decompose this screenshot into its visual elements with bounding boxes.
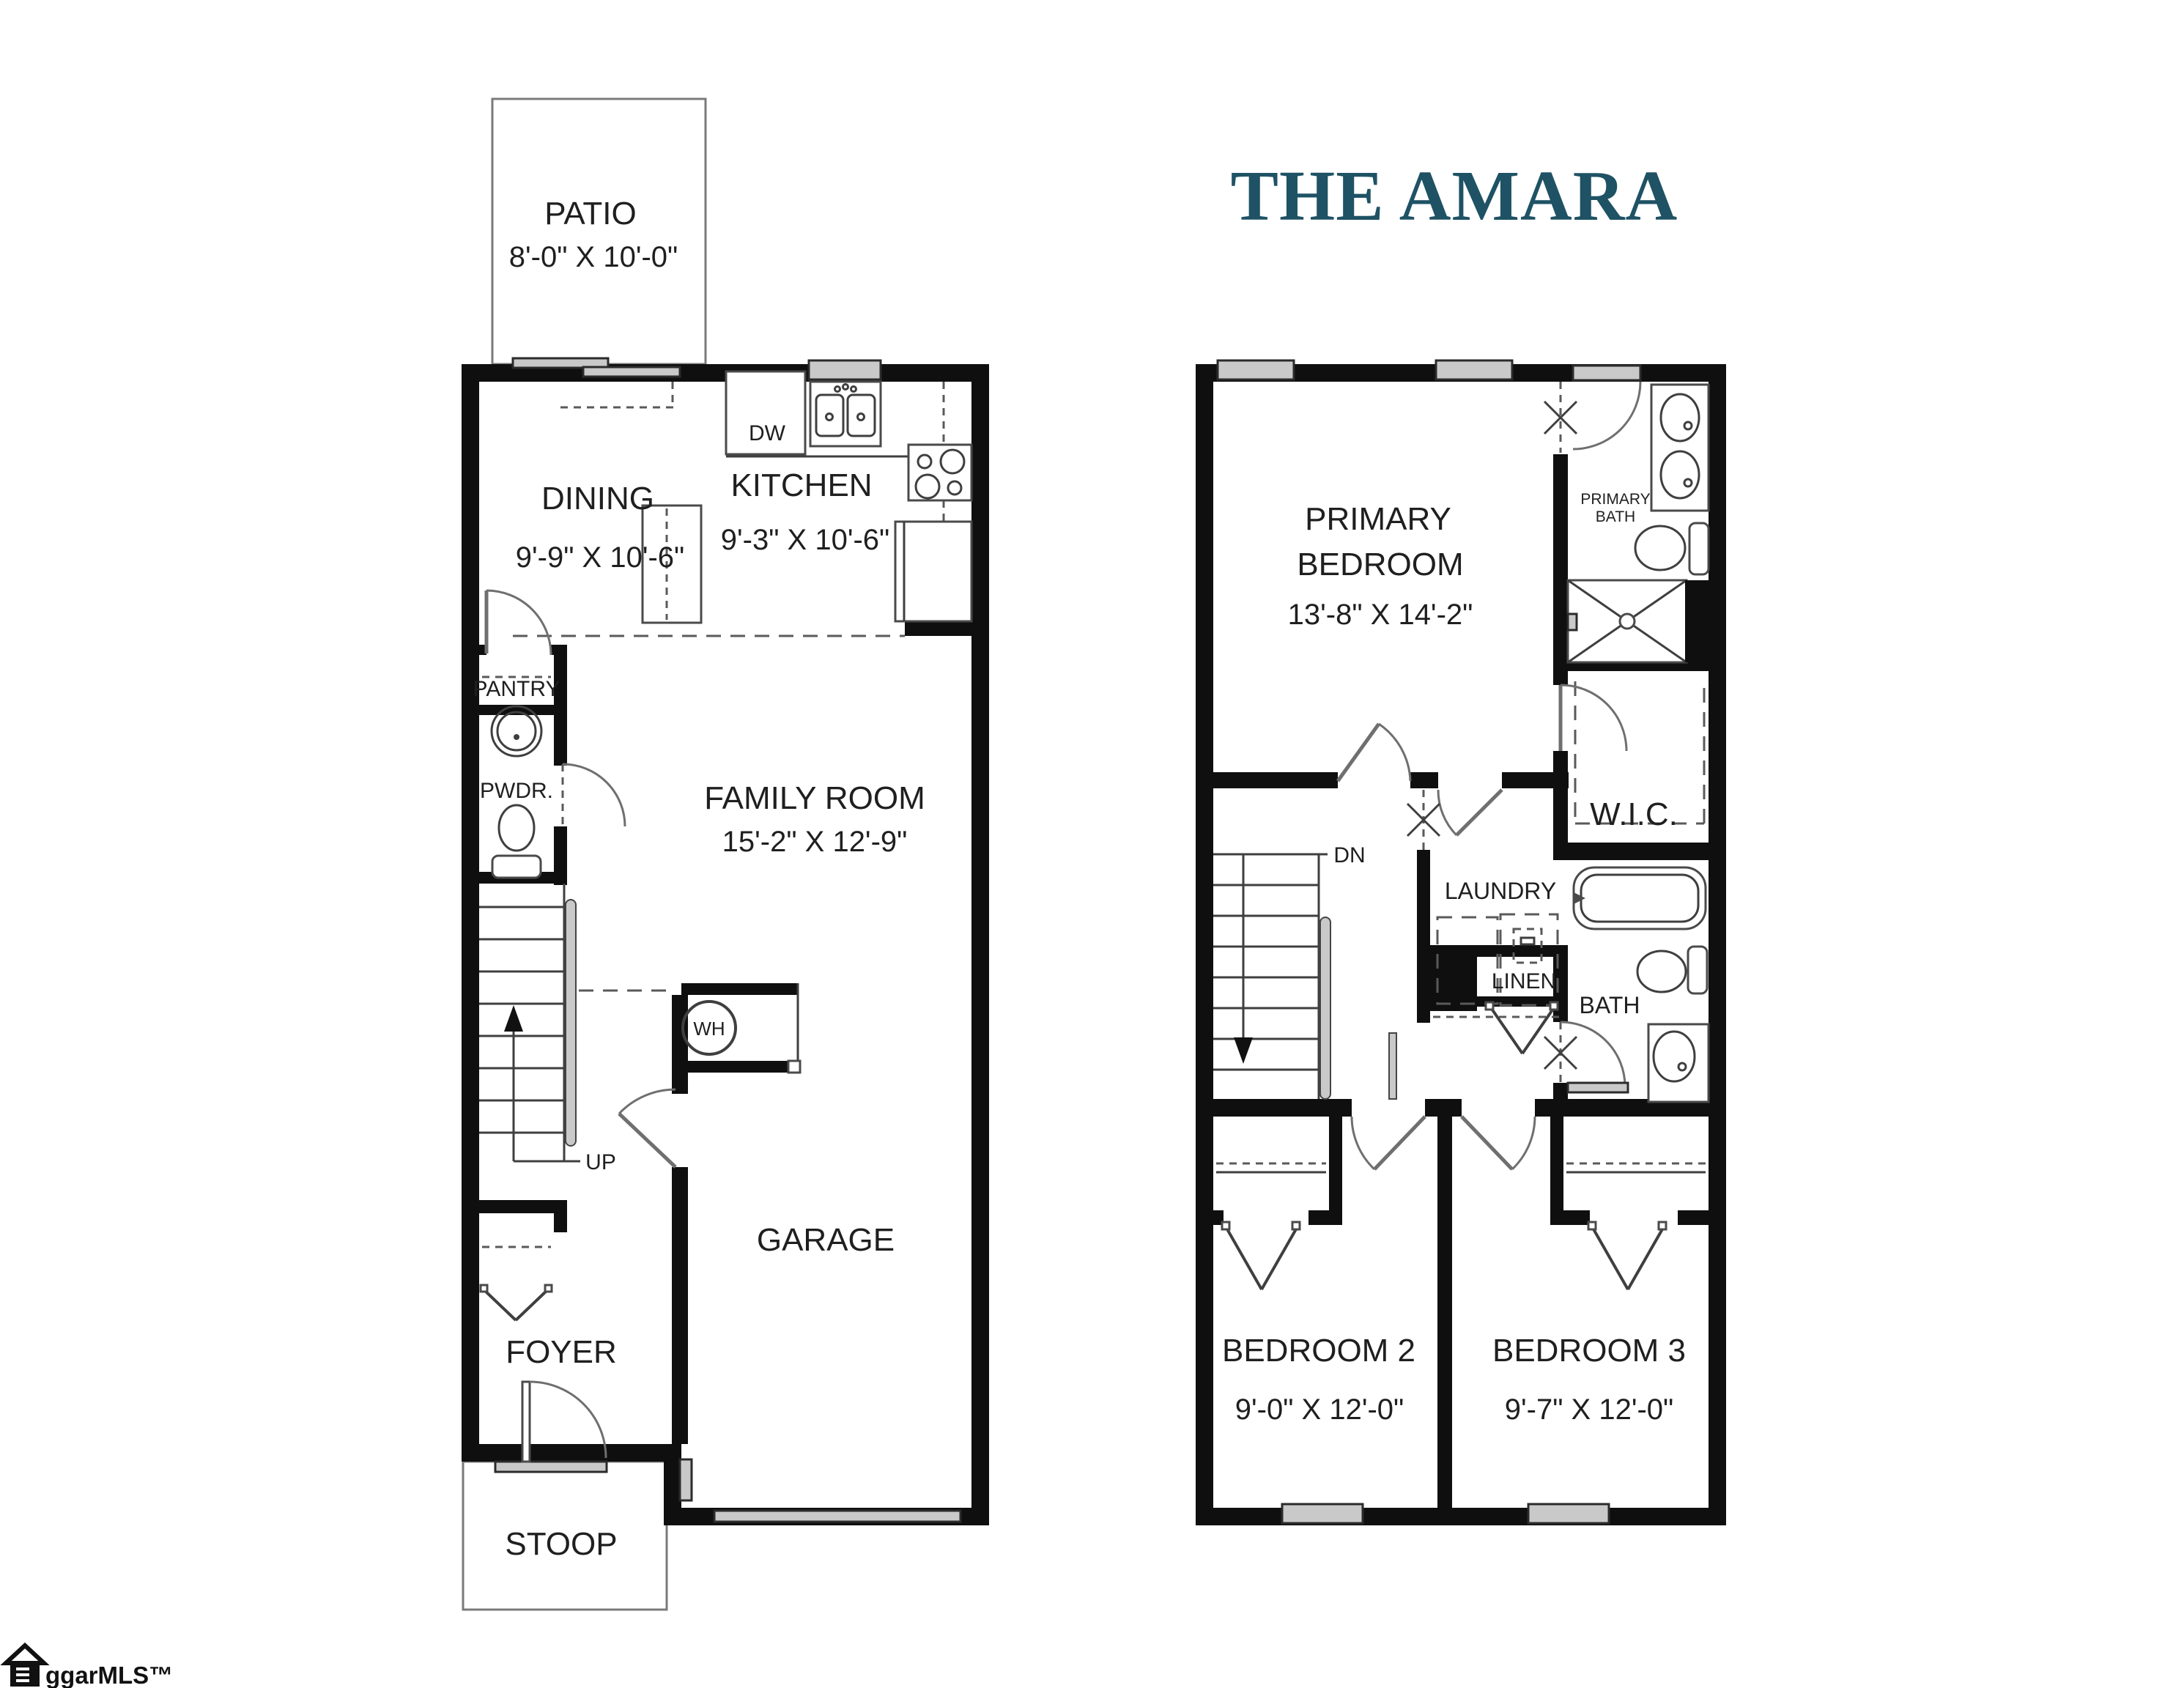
primary-bedroom-dims: 13'-8" X 14'-2" bbox=[1288, 599, 1473, 631]
dn-label: DN bbox=[1333, 843, 1365, 867]
primary-bath-label-line2: BATH bbox=[1596, 508, 1635, 525]
wall-segment bbox=[1417, 945, 1568, 957]
bedroom3-door-leaf bbox=[1462, 1117, 1512, 1169]
bifold-end bbox=[1659, 1222, 1666, 1229]
wall-segment bbox=[462, 1444, 681, 1462]
dining-dims: 9'-9" X 10'-6" bbox=[516, 541, 684, 574]
garage-entry-door-arc bbox=[619, 1089, 675, 1114]
water-heater: WH bbox=[683, 983, 800, 1073]
second-floor-plan: PRIMARY BATH W.I.C. LAUNDRY bbox=[1196, 360, 1726, 1525]
wall-segment bbox=[554, 1200, 567, 1232]
primary-bedroom-door-leaf bbox=[1338, 724, 1379, 781]
front-door-threshold bbox=[495, 1462, 607, 1472]
pantry-door-arc bbox=[486, 591, 551, 655]
first-floor-plan: PATIO 8'-0" X 10'-0" STOOP bbox=[462, 99, 989, 1610]
sink-drain bbox=[514, 734, 519, 740]
window bbox=[1218, 360, 1294, 380]
house-icon bbox=[6, 1646, 44, 1663]
bifold-end bbox=[545, 1285, 552, 1292]
bifold-end bbox=[1550, 1002, 1558, 1010]
linen-bifold bbox=[1490, 1007, 1555, 1054]
bath-door-threshold bbox=[1568, 1083, 1628, 1092]
house-icon-line bbox=[16, 1679, 29, 1682]
wic-label: W.I.C. bbox=[1590, 796, 1678, 832]
watermark-text: ggarMLS™ bbox=[45, 1662, 173, 1688]
toilet-tank bbox=[1688, 947, 1707, 993]
wic-door-arc bbox=[1561, 685, 1626, 751]
family-room-label: FAMILY ROOM bbox=[704, 780, 925, 816]
closet-bifold bbox=[1226, 1228, 1297, 1289]
nook-post bbox=[788, 1061, 800, 1073]
house-icon-line bbox=[16, 1667, 29, 1670]
bath-door-arc bbox=[1561, 1022, 1625, 1087]
wall-segment bbox=[1329, 1117, 1342, 1210]
toilet-tank bbox=[492, 856, 541, 878]
primary-bath-label-line1: PRIMARY bbox=[1580, 491, 1650, 508]
stair-railing bbox=[566, 900, 576, 1146]
wall-segment bbox=[971, 364, 989, 1525]
watermark: ggarMLS™ bbox=[6, 1646, 173, 1688]
linen-label: LINEN bbox=[1492, 969, 1556, 993]
window bbox=[1528, 1504, 1609, 1523]
wall-segment bbox=[1196, 364, 1213, 1525]
upper-cabinet-dashed bbox=[560, 382, 674, 407]
laundry-label: LAUNDRY bbox=[1445, 878, 1556, 904]
stair-treads bbox=[479, 907, 564, 1133]
wall-segment bbox=[681, 983, 799, 995]
linen-closet: LINEN bbox=[1486, 969, 1558, 1054]
wall-segment bbox=[1553, 663, 1568, 685]
toilet-bowl bbox=[499, 805, 534, 851]
wall-segment bbox=[672, 1167, 688, 1444]
primary-bath: PRIMARY BATH bbox=[1544, 366, 1709, 662]
laundry-door-arc bbox=[1438, 790, 1456, 835]
vanity-counter bbox=[1651, 385, 1709, 511]
stairs-first-floor: UP bbox=[479, 884, 616, 1174]
wall-segment bbox=[1410, 772, 1438, 788]
wall-segment bbox=[1196, 1508, 1726, 1525]
wall-segment bbox=[1308, 1210, 1342, 1225]
toilet-tank bbox=[1689, 523, 1709, 574]
window bbox=[1436, 360, 1512, 380]
wall-segment bbox=[462, 364, 479, 1462]
hall-bath: BATH bbox=[1544, 867, 1709, 1102]
stair-railing bbox=[1389, 1033, 1396, 1099]
garage-door bbox=[714, 1511, 960, 1522]
bathtub bbox=[1574, 867, 1706, 929]
bedroom2-door-arc bbox=[1352, 1117, 1374, 1169]
dishwasher-label: DW bbox=[749, 421, 786, 445]
patio-dims: 8'-0" X 10'-0" bbox=[509, 241, 678, 273]
wall-segment bbox=[1425, 1099, 1462, 1117]
front-door-leaf bbox=[522, 1382, 530, 1462]
bedroom2-dims: 9'-0" X 12'-0" bbox=[1235, 1393, 1404, 1426]
stair-treads bbox=[1213, 854, 1319, 1070]
floor-plan-canvas: THE AMARA PATIO 8'-0" X 10'-0" STOOP bbox=[0, 0, 2184, 1688]
wall-segment bbox=[1550, 1117, 1563, 1210]
bedroom2-label: BEDROOM 2 bbox=[1222, 1333, 1415, 1369]
garage-entry-door-leaf bbox=[619, 1114, 675, 1167]
wall-segment bbox=[1550, 1210, 1590, 1225]
dining-label: DINING bbox=[541, 481, 654, 517]
toilet-bowl bbox=[1635, 526, 1685, 570]
refrigerator bbox=[895, 522, 971, 621]
shower-head bbox=[1568, 614, 1577, 630]
dryer-control bbox=[1521, 938, 1534, 944]
bedroom3-label: BEDROOM 3 bbox=[1492, 1333, 1686, 1369]
water-heater-label: WH bbox=[693, 1018, 725, 1040]
stairs-second-floor: DN bbox=[1213, 843, 1396, 1099]
family-room-dims: 15'-2" X 12'-9" bbox=[722, 826, 908, 858]
dn-arrow-head bbox=[1234, 1037, 1253, 1064]
bifold-end bbox=[1222, 1222, 1229, 1229]
powder-door-arc bbox=[563, 764, 625, 826]
wall-segment bbox=[1709, 364, 1726, 1525]
pantry-label: PANTRY bbox=[473, 677, 560, 701]
vanity-counter bbox=[1648, 1024, 1709, 1102]
wall-segment bbox=[681, 1061, 799, 1073]
pedestal-sink-inner bbox=[497, 712, 536, 750]
bedroom3-dims: 9'-7" X 12'-0" bbox=[1505, 1393, 1673, 1426]
wall-segment bbox=[1678, 1210, 1709, 1225]
garage-step bbox=[680, 1459, 692, 1500]
toilet-bowl bbox=[1637, 951, 1686, 992]
x-marker bbox=[1544, 401, 1577, 434]
stair-railing bbox=[1320, 917, 1330, 1099]
kitchen-window bbox=[809, 360, 881, 380]
bifold-end bbox=[1588, 1222, 1596, 1229]
foyer-label: FOYER bbox=[506, 1334, 617, 1370]
stoop-label: STOOP bbox=[505, 1526, 617, 1562]
walk-in-closet: W.I.C. bbox=[1561, 681, 1704, 832]
wall-segment bbox=[1553, 843, 1726, 860]
wall-segment bbox=[1213, 772, 1338, 788]
page-title: THE AMARA bbox=[1231, 157, 1678, 236]
house-icon-line bbox=[16, 1673, 29, 1676]
wall-segment bbox=[1437, 1117, 1452, 1508]
closet-bifold bbox=[484, 1289, 548, 1320]
patio-outline bbox=[492, 99, 706, 364]
window bbox=[1282, 1504, 1363, 1523]
shower-wall-fill bbox=[1685, 580, 1709, 662]
shower-drain bbox=[1620, 614, 1635, 629]
wall-segment bbox=[1553, 751, 1568, 843]
bedroom3-door-arc bbox=[1512, 1117, 1535, 1169]
up-label: UP bbox=[585, 1150, 616, 1174]
garage-label: GARAGE bbox=[757, 1222, 895, 1258]
laundry-door-leaf bbox=[1456, 790, 1502, 835]
wall-segment bbox=[672, 995, 688, 1094]
bedroom2-door-leaf bbox=[1374, 1117, 1425, 1169]
primary-bath-door-arc bbox=[1573, 382, 1640, 449]
wall-segment bbox=[1553, 454, 1568, 663]
bifold-end bbox=[481, 1285, 487, 1292]
primary-bedroom-door-arc bbox=[1379, 724, 1410, 781]
primary-bedroom-label-line1: PRIMARY bbox=[1305, 501, 1451, 537]
primary-bath-threshold bbox=[1573, 366, 1640, 380]
wall-segment bbox=[1213, 1099, 1352, 1117]
bifold-end bbox=[1292, 1222, 1300, 1229]
powder-label: PWDR. bbox=[480, 779, 553, 803]
up-arrow-head bbox=[504, 1005, 523, 1032]
wall-segment bbox=[554, 645, 567, 766]
kitchen-dims: 9'-3" X 10'-6" bbox=[721, 524, 889, 556]
sliding-door-panel bbox=[583, 367, 680, 377]
primary-bedroom-label-line2: BEDROOM bbox=[1297, 547, 1463, 582]
closet-bifold bbox=[1593, 1228, 1663, 1289]
kitchen-label: KITCHEN bbox=[730, 467, 872, 503]
floor-plan-page: THE AMARA PATIO 8'-0" X 10'-0" STOOP bbox=[0, 0, 2184, 1688]
patio-label: PATIO bbox=[544, 196, 637, 232]
bifold-end bbox=[1486, 1002, 1493, 1010]
bath-label: BATH bbox=[1580, 992, 1640, 1018]
